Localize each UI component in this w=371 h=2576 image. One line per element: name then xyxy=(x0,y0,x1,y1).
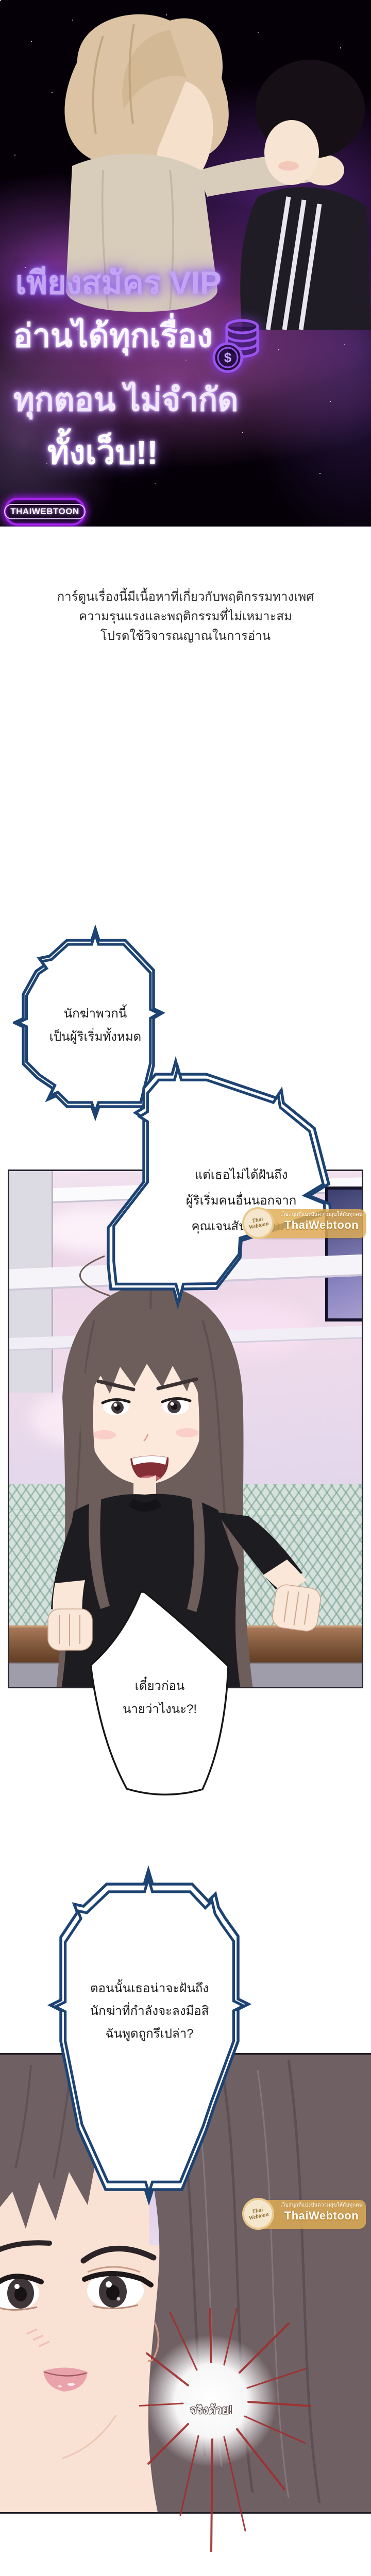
woman-artwork xyxy=(32,1248,362,1688)
hand-right xyxy=(271,1583,322,1632)
building-beam xyxy=(8,1177,363,1205)
vip-promo-banner: เพียงสมัคร VIP อ่านได้ทุกเรื่อง ทุกตอน ไ… xyxy=(0,0,371,527)
content-warning-line3: โปรดใช้วิจารณญาณในการอ่าน xyxy=(0,626,371,646)
thaiwebtoon-watermark: เว็บสนุกที่แบ่งปันความสุขให้กับทุกคน Tha… xyxy=(242,2198,366,2231)
banner-headline-line3: ทุกตอน ไม่จำกัด xyxy=(13,377,239,423)
speech-bubble-1: นักฆ่าพวกนี้ เป็นผู้ริเริ่มทั้งหมด xyxy=(13,925,178,1141)
bubble-line: เป็นผู้ริเริ่มทั้งหมด xyxy=(13,1025,178,1048)
hand-left xyxy=(48,1609,92,1650)
cloud xyxy=(40,1207,154,1253)
bubble-line: นักฆ่าที่กำลังจะลงมือสิ xyxy=(36,2000,263,2023)
thaiwebtoon-watermark: เว็บสนุกที่แบ่งปันความสุขให้กับทุกคน Tha… xyxy=(242,1207,366,1240)
svg-text:$: $ xyxy=(224,350,232,365)
blush-left xyxy=(93,1430,116,1439)
bubble-line: นักฆ่าพวกนี้ xyxy=(13,1002,178,1025)
content-warning: การ์ตูนเรื่องนี้มีเนื้อหาที่เกี่ยวกับพฤต… xyxy=(0,587,371,646)
thaiwebtoon-badge: THAIWEBTOON xyxy=(4,498,86,526)
spiky-bubble-outline xyxy=(13,925,178,1141)
bubble-line: นายว่าไงนะ?! xyxy=(77,1698,242,1721)
lips xyxy=(43,2367,88,2392)
banner-headline-line1: เพียงสมัคร VIP xyxy=(15,260,221,307)
webtoon-page: เพียงสมัคร VIP อ่านได้ทุกเรื่อง ทุกตอน ไ… xyxy=(0,0,371,2576)
bubble-line: ฉันพูดถูกรึเปล่า? xyxy=(36,2023,263,2045)
banner-headline-line2: อ่านได้ทุกเรื่อง xyxy=(13,313,212,360)
thaiwebtoon-badge-label: THAIWEBTOON xyxy=(4,504,86,519)
eye-right xyxy=(85,2267,151,2309)
hair-swirl-line xyxy=(80,1256,110,1296)
banner-headline-line4: ทั้งเว็บ!! xyxy=(47,429,158,477)
bubble-line: ตอนนั้นเธอน่าจะฝันถึง xyxy=(36,1977,263,2000)
content-warning-line2: ความรุนแรงและพฤติกรรมที่ไม่เหมาะสม xyxy=(0,607,371,626)
character-dark-hair xyxy=(240,60,371,330)
burst-sfx-text: จริงด้วย! xyxy=(139,2401,283,2419)
content-warning-line1: การ์ตูนเรื่องนี้มีเนื้อหาที่เกี่ยวกับพฤต… xyxy=(0,587,371,607)
watermark-tagline: เว็บสนุกที่แบ่งปันความสุขให้กับทุกคน xyxy=(279,1211,364,1218)
eyebrow-left xyxy=(0,2243,49,2249)
watermark-brand: ThaiWebtoon xyxy=(279,1218,364,1232)
eyebrow-right xyxy=(83,2248,154,2261)
realization-burst xyxy=(139,2308,314,2571)
blush-right xyxy=(176,1428,198,1437)
blush-strokes xyxy=(27,2329,49,2346)
coin-stack-icon: $ xyxy=(210,315,262,378)
jaw-line xyxy=(62,2415,116,2459)
eye-left xyxy=(0,2275,41,2310)
watermark-tagline: เว็บสนุกที่แบ่งปันความสุขให้กับทุกคน xyxy=(279,2201,364,2209)
panel-cityscape-woman xyxy=(8,1170,363,1688)
watermark-brand: ThaiWebtoon xyxy=(279,2209,364,2223)
